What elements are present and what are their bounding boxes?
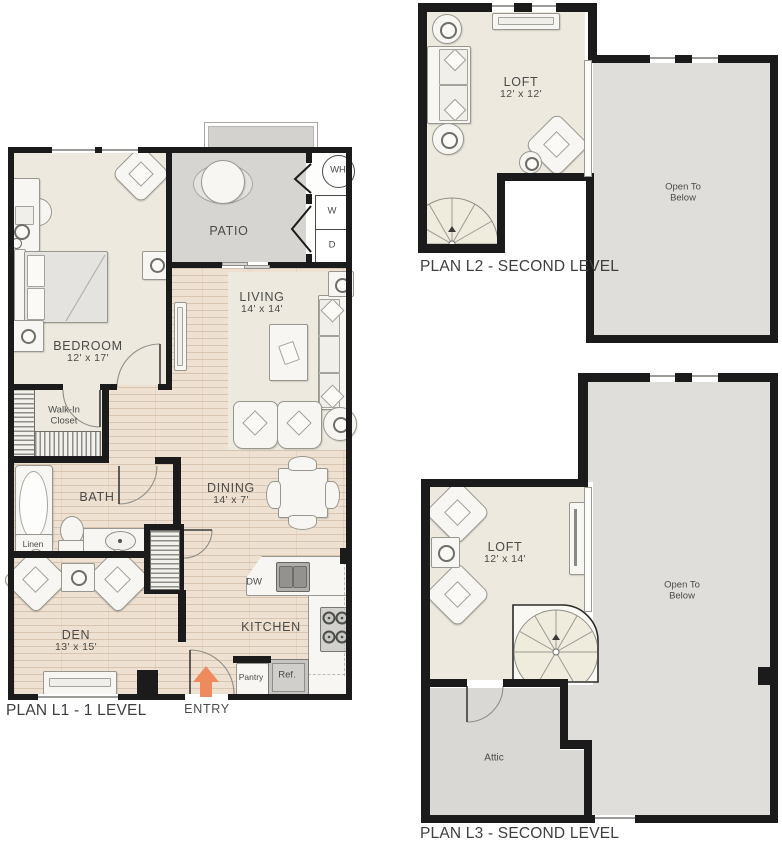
console-shelf [498,17,554,25]
window [692,55,718,63]
table-lamp [525,157,539,171]
window [650,373,675,382]
dining-chair [325,481,340,509]
wall [102,390,109,460]
open-to-below-floor [588,382,770,482]
open-to-below-label: Open To Below [664,580,700,601]
dryer-label: D [329,241,336,252]
sink-basin [293,566,307,588]
washer-label: W [328,207,337,218]
table-lamp [71,570,87,586]
plan-l1-title: PLAN L1 - 1 LEVEL [6,702,146,720]
plan-l2-title: PLAN L2 - SECOND LEVEL [420,258,619,276]
wall [173,457,181,530]
floorplan-canvas: BEDROOM 12' x 17' PATIO LIVING 14' x 14'… [0,0,782,844]
wall [770,55,778,343]
wall [418,244,505,253]
bath-label: BATH [79,490,114,504]
kitchen-label: KITCHEN [241,620,301,634]
open-to-below-label: Open To Below [665,182,701,203]
wall [770,373,778,823]
window [532,3,556,12]
wall [178,590,186,642]
wall [8,384,63,390]
wall [137,670,158,694]
wall [306,254,312,262]
walkin-closet-label: Walk-In Closet [48,405,80,426]
water-heater-label: WH [330,166,346,177]
wall [158,384,172,390]
wall [340,548,352,564]
coat-closet-rack [150,530,180,590]
attic-label: Attic [484,752,503,763]
entry-label: ENTRY [184,702,230,716]
dining-chair [288,515,317,530]
nightstand-lamp [21,329,36,344]
sink-basin [279,566,293,588]
loft-railing [584,60,592,177]
living-label: LIVING 14' x 14' [239,290,284,316]
bathtub-basin [19,471,48,539]
upper-cabinet-line [344,562,345,676]
wall [421,479,430,823]
refrigerator-label: Ref. [278,671,295,682]
dining-table [278,468,328,518]
sliding-door-panel [244,265,270,269]
window [492,3,514,12]
dining-chair [266,481,281,509]
desk-drawer [15,206,34,225]
wall [497,181,505,253]
table-lamp [438,545,455,562]
plan-l3-title: PLAN L3 - SECOND LEVEL [420,825,619,843]
wall [503,679,563,687]
wall [346,147,352,700]
loft-label: LOFT 12' x 12' [500,75,542,101]
hall-console-shelf [177,307,183,366]
wall [593,335,778,343]
sofa-cushion [319,336,340,373]
wall [8,456,109,463]
window [38,694,118,700]
pantry-label: Pantry [239,673,264,683]
tv-screen [574,509,577,566]
dining-chair [288,456,317,471]
wall [588,3,597,63]
wall [8,551,148,558]
open-to-below-floor [568,685,770,745]
wall [497,173,590,181]
entry-arrow-shaft [200,681,212,697]
bedroom-label: BEDROOM 12' x 17' [53,339,123,365]
dining-label: DINING 14' x 7' [207,481,255,507]
loft-label: LOFT 12' x 14' [484,540,526,566]
window [52,147,95,153]
wall-notch [758,667,770,685]
open-to-below-floor [592,745,770,815]
window [692,373,718,382]
wall [421,679,467,687]
wall [588,55,778,63]
wall [166,262,222,268]
stair-nook-floor [427,178,497,248]
pouf-center [441,132,458,149]
wall [166,153,172,390]
wall [268,262,352,268]
wall [578,373,588,487]
wall [584,740,592,820]
wall [421,479,588,487]
patio-label: PATIO [209,224,248,238]
wall [8,147,14,700]
dishwasher-label: DW [246,578,262,589]
pantry-wall [233,656,271,663]
pouf-center [440,22,457,39]
wall [306,153,312,163]
den-label: DEN 13' x 15' [55,628,97,654]
sink-drain [118,539,122,543]
console-shelf [49,678,111,687]
wall [418,3,427,253]
patio-table [201,160,245,204]
loft-railing [584,487,592,612]
window [595,815,635,823]
attic-floor [560,750,584,815]
linen-label: Linen [23,540,44,550]
closet-rack [34,431,101,459]
wall [306,194,312,204]
upper-cabinet-line [303,674,345,675]
nightstand-lamp [150,258,165,273]
window [102,147,138,153]
bed-pillow [27,288,45,320]
window [650,55,675,63]
bed-pillow [27,255,45,287]
wall [560,679,568,747]
entry-arrow-icon [193,666,219,682]
